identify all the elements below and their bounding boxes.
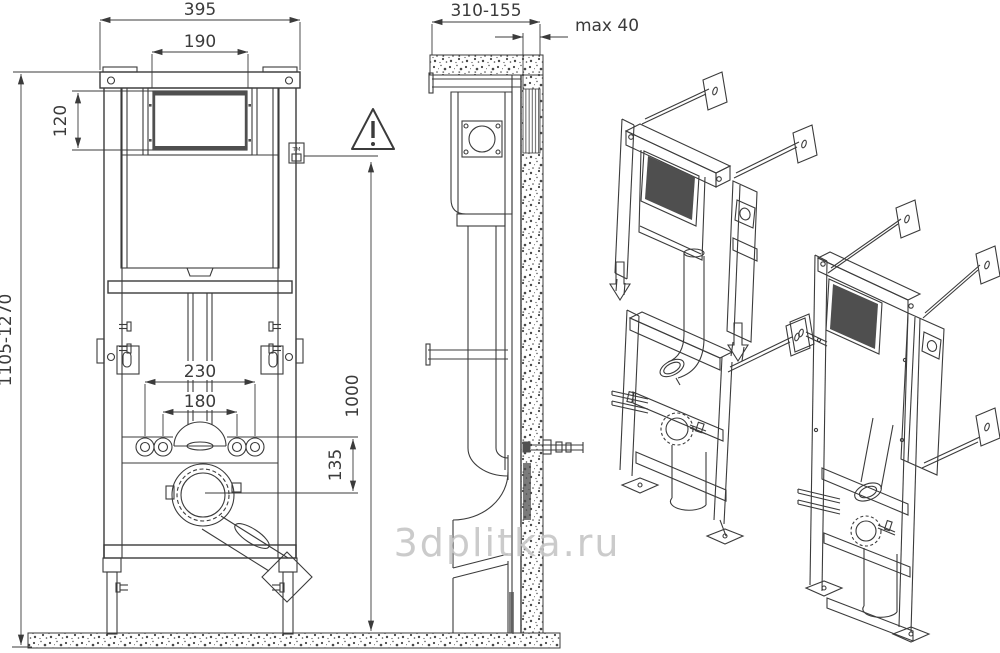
frame-rails bbox=[104, 88, 296, 558]
warning-triangle-icon bbox=[352, 109, 394, 149]
wall-anchor-rods-assembled bbox=[790, 200, 1000, 468]
installation-frame-drawing-page: TM 395 190 120 1105-1270 bbox=[0, 0, 1000, 653]
dim-outlet-drop: 135 bbox=[326, 449, 346, 481]
front-view: TM bbox=[97, 67, 378, 634]
adjustable-feet bbox=[103, 558, 297, 634]
dim-frame-height-range: 1105-1270 bbox=[0, 294, 16, 387]
wall-top bbox=[430, 55, 543, 75]
lower-crossbar bbox=[104, 545, 296, 558]
technical-drawing: TM 395 190 120 1105-1270 bbox=[0, 0, 1000, 653]
assembled-frame bbox=[806, 252, 944, 642]
upper-crossbar bbox=[108, 281, 292, 293]
flush-pipe-side bbox=[468, 226, 508, 476]
dim-overall-width: 395 bbox=[184, 0, 216, 20]
upper-frame-section bbox=[615, 119, 757, 361]
floor-section bbox=[28, 633, 560, 648]
wall-finish-layer bbox=[523, 89, 540, 153]
frame-top-bar bbox=[100, 67, 300, 88]
iso-view-assembled bbox=[790, 200, 1000, 642]
iso-view-exploded bbox=[610, 72, 817, 544]
wc-fixing-bolts bbox=[136, 438, 264, 456]
foot-lock-bolts bbox=[116, 583, 284, 592]
dim-actuation-height: 1000 bbox=[343, 374, 363, 417]
dim-bolt-spacing-inner: 180 bbox=[184, 392, 216, 412]
trademark-label: TM bbox=[291, 147, 300, 153]
cistern-side bbox=[451, 92, 512, 226]
rail-bolts bbox=[119, 322, 281, 353]
dim-bolt-spacing-outer: 230 bbox=[184, 362, 216, 382]
watermark: 3dplitka.ru bbox=[394, 521, 621, 565]
lower-frame-section bbox=[612, 310, 810, 544]
exploded-flush-pipe bbox=[657, 249, 704, 385]
dim-max-finish: max 40 bbox=[575, 16, 639, 36]
cistern bbox=[121, 88, 279, 276]
flush-plate-opening bbox=[143, 88, 257, 155]
assembled-pipes bbox=[798, 418, 897, 617]
dim-opening-height: 120 bbox=[51, 105, 71, 137]
dim-opening-width: 190 bbox=[184, 32, 216, 52]
dim-mounting-depth: 310-155 bbox=[450, 1, 521, 21]
front-view-dimensions: 395 190 120 1105-1270 230 180 135 1000 bbox=[0, 0, 371, 647]
